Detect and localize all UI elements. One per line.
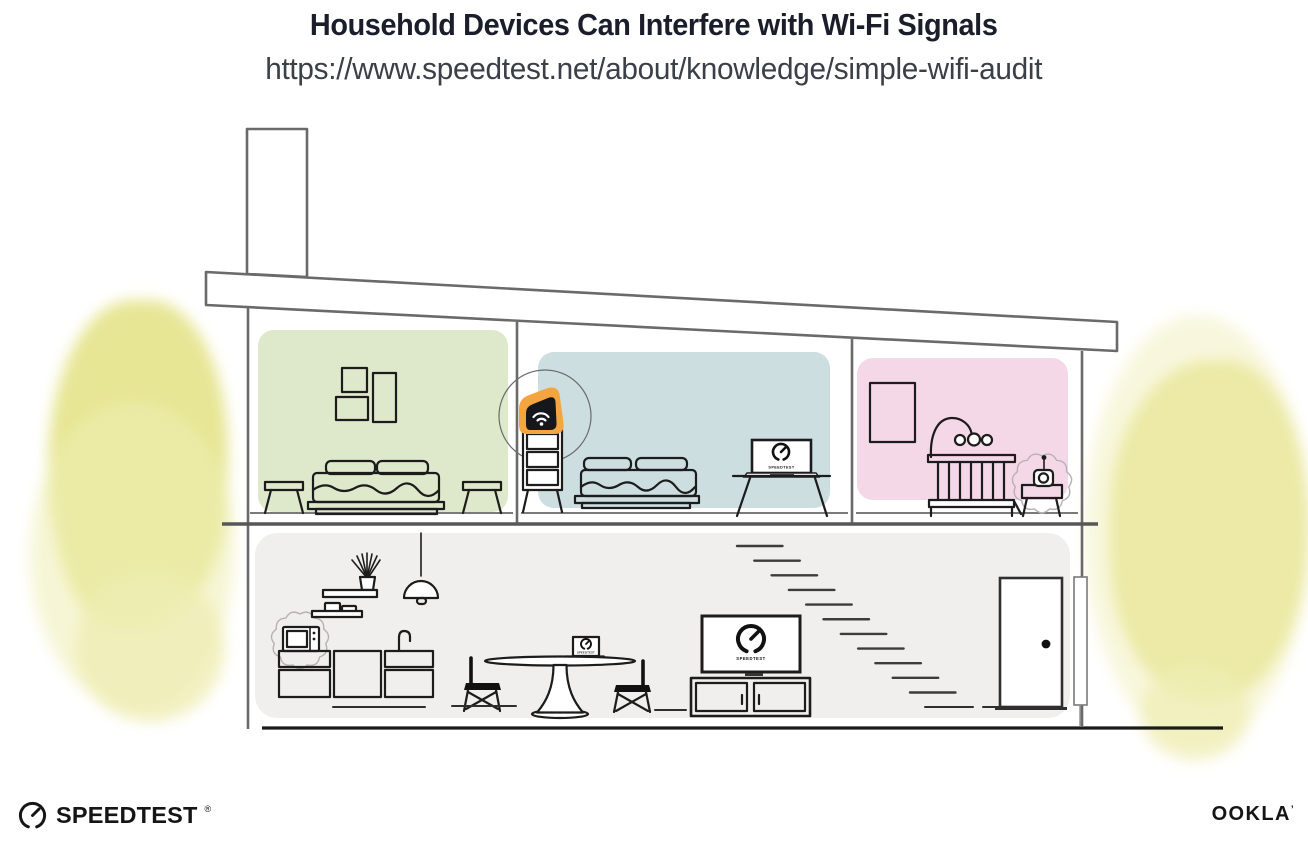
wifi-router-icon: [519, 388, 564, 434]
registered-mark: ®: [205, 804, 212, 814]
house-cross-section-illustration: SPEEDTEST: [0, 0, 1308, 861]
trademark-tick: ’: [1291, 804, 1295, 815]
door-knob: [1042, 640, 1051, 649]
tv-screen-label: SPEEDTEST: [736, 656, 765, 661]
downspout: [1074, 577, 1087, 727]
ookla-wordmark: OOKLA: [1212, 803, 1291, 825]
laptop-screen-label: SPEEDTEST: [577, 650, 595, 654]
ookla-logo: OOKLA’: [1212, 803, 1295, 826]
room-ground-floor-gray: [255, 533, 1070, 718]
tv-with-speedtest: SPEEDTEST: [702, 616, 800, 676]
speedtest-logo: SPEEDTEST®: [16, 799, 211, 832]
microwave-icon: [283, 627, 319, 651]
speedtest-wordmark: SPEEDTEST: [56, 802, 198, 829]
laptop-screen-bedroom: SPEEDTEST: [744, 440, 819, 477]
laptop-screen-label: SPEEDTEST: [768, 466, 794, 470]
chimney: [247, 129, 307, 277]
speedtest-gauge-icon: [16, 799, 49, 832]
infographic-canvas: Household Devices Can Interfere with Wi-…: [0, 0, 1308, 861]
front-door: [995, 578, 1067, 709]
